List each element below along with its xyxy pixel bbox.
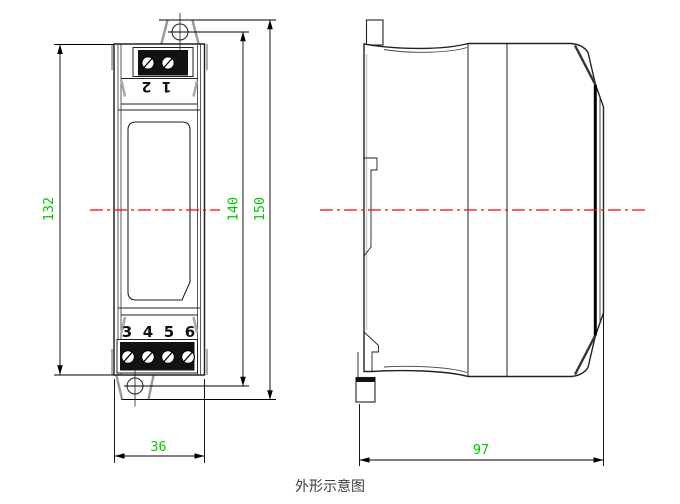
label-window: [128, 122, 190, 300]
side-top-tab: [367, 20, 384, 45]
dim132-arrow-down: [57, 365, 63, 375]
dim97-arrow-right: [594, 457, 604, 462]
terminal-label-2: 2: [142, 78, 152, 94]
terminal-label-1: 1: [162, 78, 172, 94]
dim150-arrow-up: [267, 20, 273, 30]
dim132-text: 132: [41, 197, 57, 221]
dim150-arrow-down: [267, 390, 273, 400]
terminal-label-4: 4: [143, 323, 153, 341]
drawing-caption: 外形示意图: [295, 478, 365, 495]
dimension-body-height: 132: [41, 45, 114, 376]
dim150-text: 150: [252, 197, 268, 221]
drawing-canvas: 1 2 3 4 5 6: [0, 0, 680, 504]
din-clip-foot-bar: [356, 378, 375, 383]
dim36-arrow-right: [195, 453, 205, 458]
dim97-arrow-left: [360, 457, 370, 462]
dim140-arrow-up: [240, 32, 246, 42]
outline-drawing: 1 2 3 4 5 6: [0, 0, 680, 504]
dim36-arrow-left: [115, 453, 125, 458]
dim140-text: 140: [226, 197, 242, 221]
dim132-extensions: [54, 45, 114, 376]
dim132-arrow-up: [57, 45, 63, 55]
dim36-text: 36: [150, 439, 166, 455]
terminal-label-3: 3: [122, 323, 132, 341]
side-view: [356, 20, 604, 402]
terminal-label-5: 5: [164, 323, 174, 341]
dim97-text: 97: [473, 442, 489, 458]
dim140-arrow-down: [240, 377, 246, 387]
terminal-label-6: 6: [185, 323, 195, 341]
